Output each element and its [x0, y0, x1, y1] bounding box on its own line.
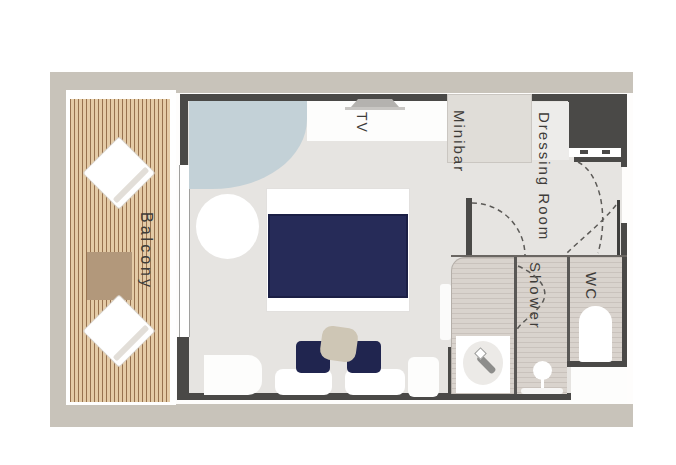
wall-shelf	[440, 284, 451, 340]
shower-wc-wall	[567, 257, 570, 361]
balcony-label: Balcony	[138, 212, 154, 290]
wall-top	[182, 94, 627, 101]
side-table-left	[204, 355, 262, 395]
door-hinge-tick	[580, 150, 588, 154]
vestibule-wall-stub	[466, 198, 472, 258]
entry-door-leaf	[617, 200, 620, 256]
shower-base	[521, 388, 563, 394]
floorplan-image: Balcony TV Minibar Dressing Room	[0, 0, 676, 465]
wall-left-lower-stub	[177, 337, 189, 400]
balcony-table	[87, 252, 132, 300]
pouf	[196, 194, 259, 259]
entry-door-threshold	[568, 148, 621, 157]
side-table-right	[408, 357, 439, 397]
sink-room-left-wall	[448, 347, 451, 397]
dressing-room-label: Dressing Room	[537, 112, 552, 241]
shower-label: Shower	[528, 262, 543, 331]
tv-stand-line	[345, 107, 405, 110]
tv-icon	[351, 99, 399, 107]
balcony-sliding-door	[179, 165, 190, 337]
tv-label: TV	[355, 112, 369, 134]
sink-shower-wall	[514, 257, 517, 394]
entry-threshold-wall	[574, 157, 627, 162]
wc-label: WC	[584, 272, 599, 301]
shower-head-icon	[533, 361, 552, 380]
exterior-notch	[571, 367, 627, 404]
entry-wall-block	[568, 94, 627, 148]
frame-bottom	[50, 404, 633, 427]
door-hinge-tick	[602, 150, 610, 154]
toilet-icon	[579, 306, 612, 362]
frame-left	[50, 72, 66, 427]
coffee-table	[319, 325, 359, 364]
wall-left-upper-stub	[180, 94, 188, 165]
minibar-label: Minibar	[452, 110, 467, 173]
entry-door-jamb	[621, 148, 627, 167]
bed-duvet	[268, 214, 408, 298]
